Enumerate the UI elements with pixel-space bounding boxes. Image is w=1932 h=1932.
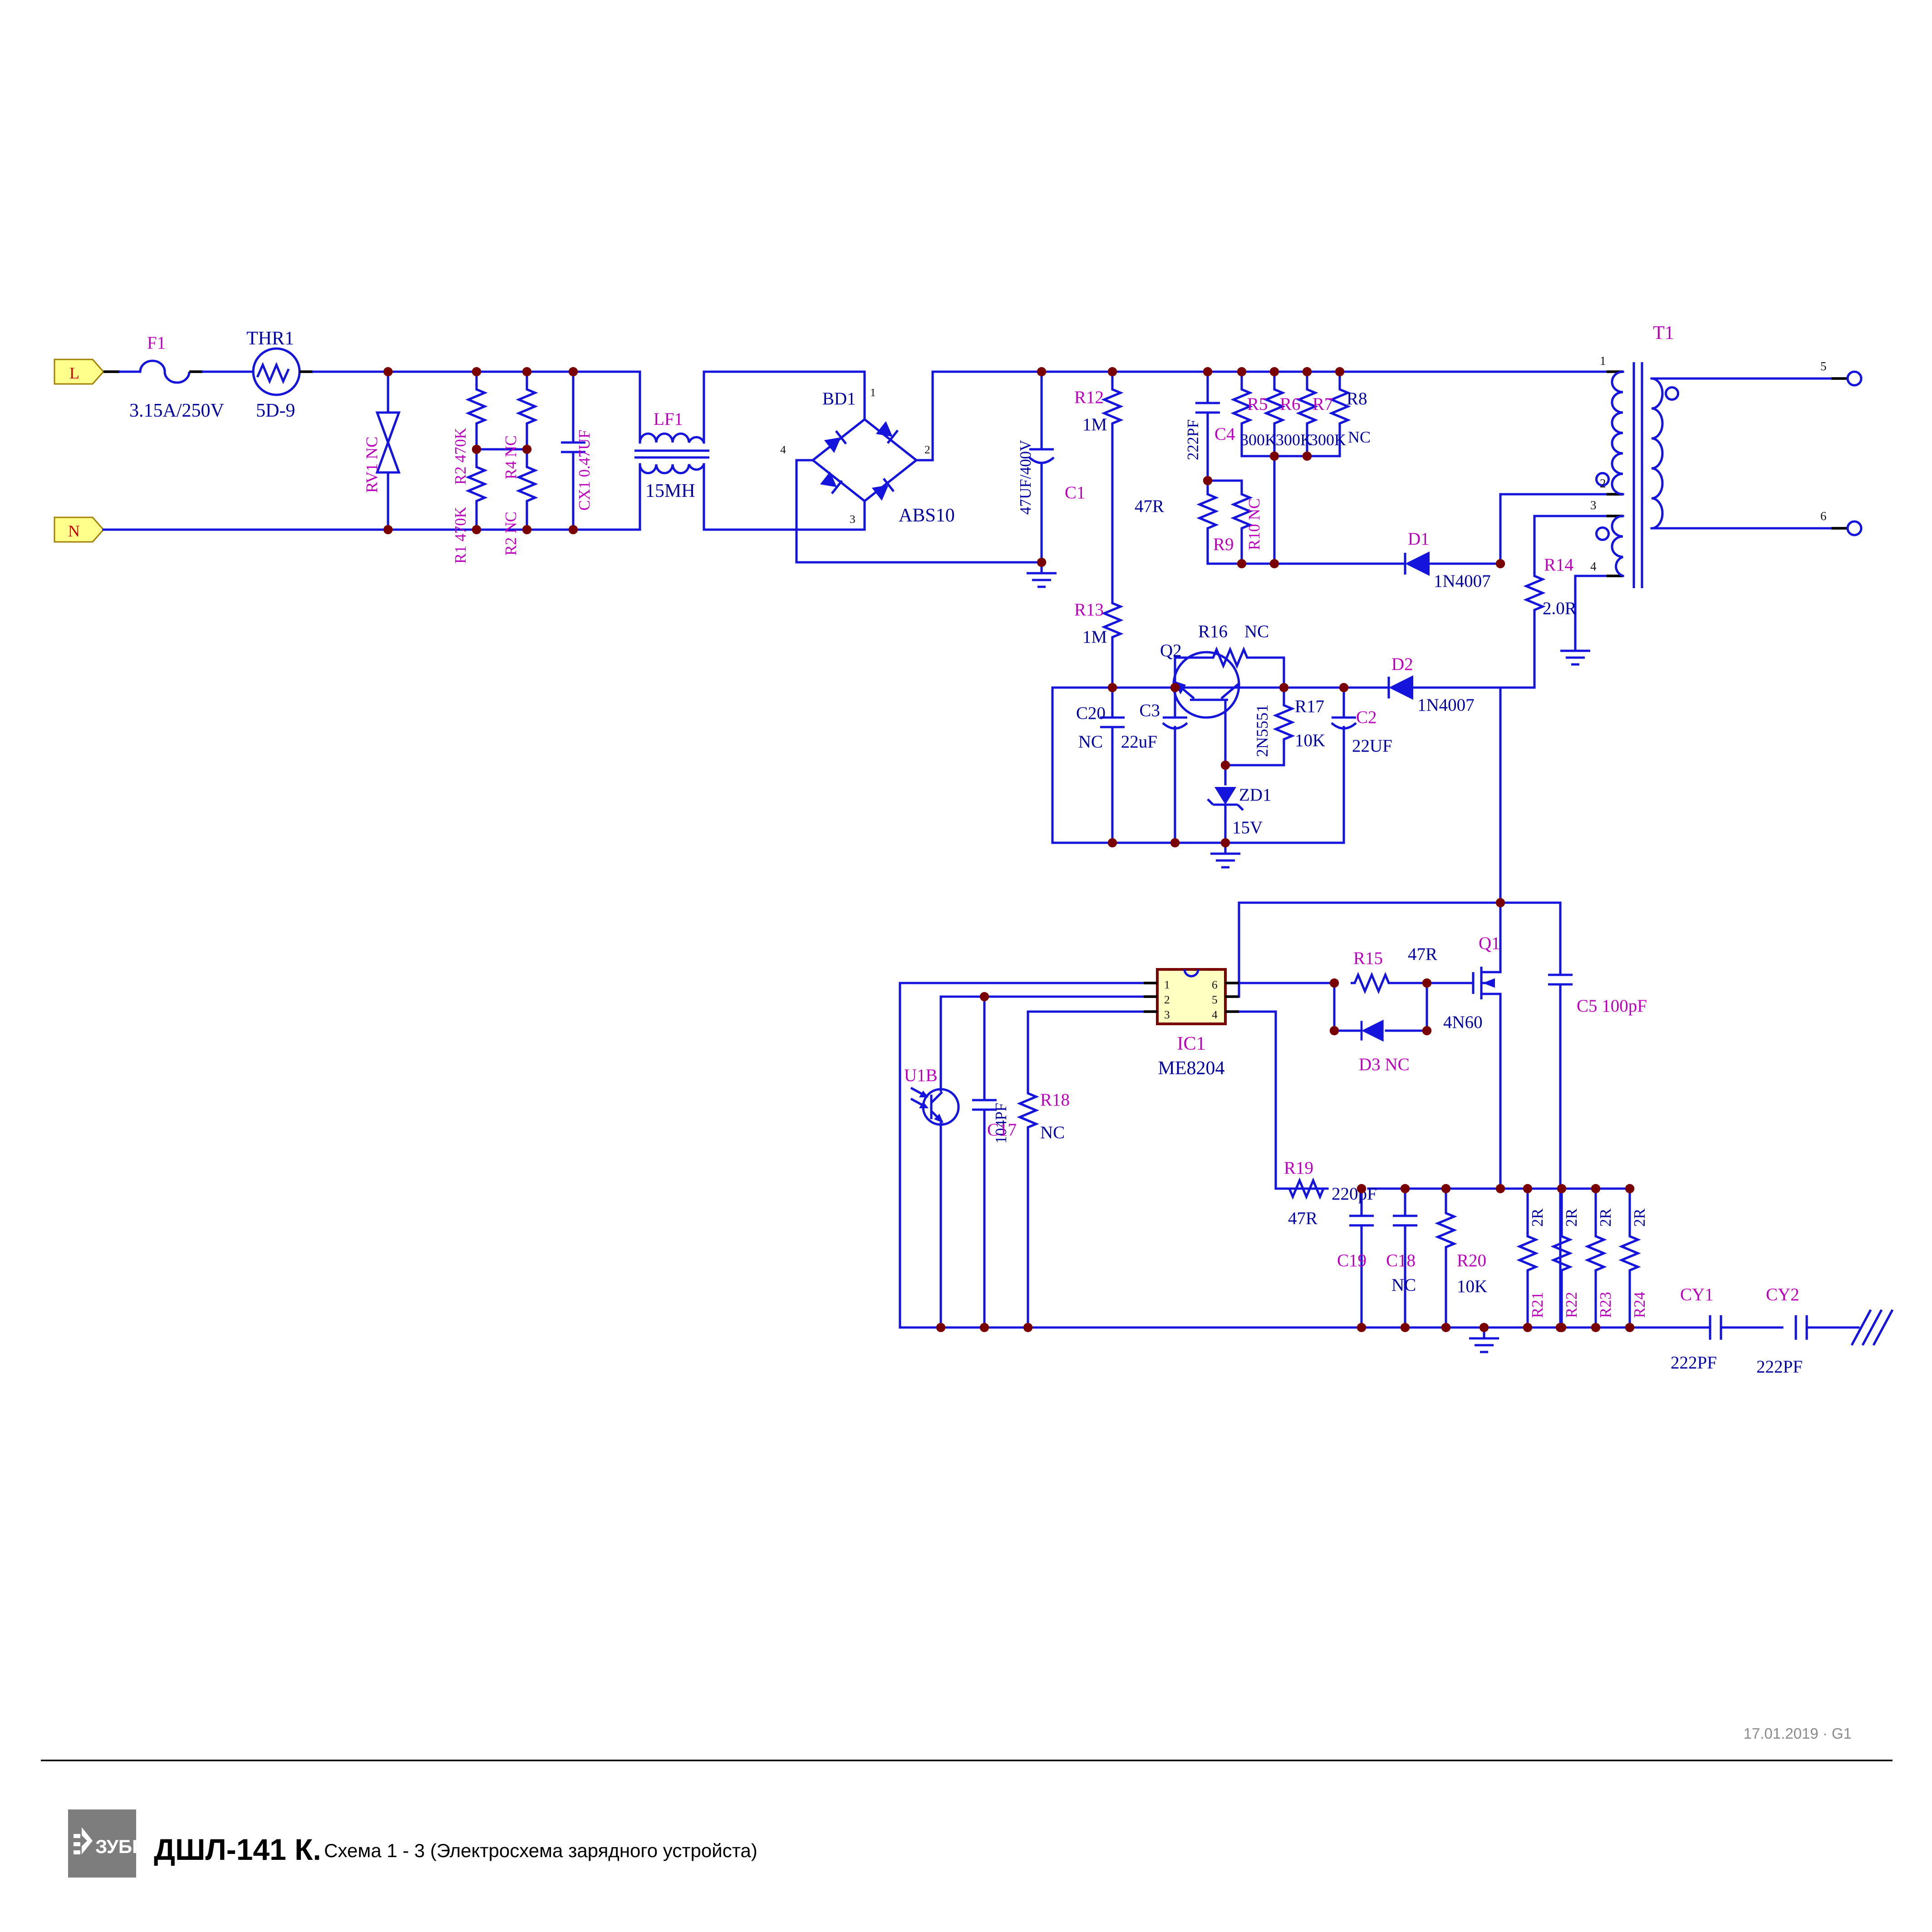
capacitor-C18-ref: C18 (1386, 1251, 1416, 1270)
bridge-diode-3 (820, 472, 842, 494)
bridge-diamond (813, 419, 916, 501)
bridge-ref: BD1 (822, 389, 856, 408)
bridge-rectifier: BD1 ABS10 1 2 3 4 (780, 372, 1623, 562)
model-title: ДШЛ-141 К. (154, 1833, 321, 1866)
resistor-R23-ref: R23 (1597, 1292, 1614, 1318)
capacitor-C19-symbol (1349, 1216, 1374, 1225)
capacitor-CY1-value: 222PF (1671, 1353, 1717, 1372)
resistor-R4-label: R4 NC (502, 435, 520, 479)
t1-pin6: 6 (1820, 509, 1827, 523)
capacitor-C3-value: 22uF (1121, 732, 1157, 752)
thermistor-THR1-symbol (253, 349, 300, 395)
bridge-pin1: 1 (870, 386, 876, 399)
resistor-R13-ref: R13 (1074, 600, 1104, 619)
resistor-R8-value: NC (1348, 428, 1371, 446)
resistor-R2b (519, 463, 535, 504)
t1-output-terminal-6 (1848, 521, 1861, 535)
t1-pin3: 3 (1590, 498, 1597, 512)
resistor-R20-value: 10K (1457, 1277, 1487, 1296)
input-section: L N F1 3.15A/250V THR1 5D-9 RV1 NC R2 47… (54, 328, 865, 564)
bridge-pin4: 4 (780, 443, 786, 456)
resistor-R24-ref: R24 (1631, 1292, 1648, 1318)
ground-T1pin4 (1560, 640, 1590, 664)
capacitor-CY2-ref: CY2 (1766, 1285, 1799, 1304)
capacitor-CY2-symbol (1796, 1315, 1807, 1340)
capacitor-CY1-symbol (1710, 1315, 1721, 1340)
t1-pin2: 2 (1600, 477, 1606, 490)
resistor-R5-value: 300K (1240, 431, 1277, 449)
ic1-pin6: 6 (1212, 978, 1218, 991)
bridge-diode-2 (876, 421, 898, 443)
resistor-R16-value: NC (1244, 622, 1269, 641)
resistor-R6-value: 300K (1276, 431, 1312, 449)
t1-pin5: 5 (1820, 359, 1827, 373)
capacitor-C1-value: 47UF/400V (1017, 440, 1034, 515)
resistor-R20 (1438, 1209, 1454, 1250)
optocoupler-ref: U1B (904, 1066, 938, 1085)
resistor-R10-label: R10 NC (1246, 498, 1263, 550)
t1-secondary-winding (1652, 379, 1662, 528)
t1-pin1: 1 (1600, 354, 1606, 368)
line-terminal-label: L (69, 364, 79, 382)
choke-value: 15MH (645, 481, 695, 501)
ic1-pin2: 2 (1164, 993, 1170, 1006)
transformer-ref: T1 (1653, 323, 1674, 344)
resistor-R16-ref: R16 (1198, 622, 1228, 641)
ic1-value: ME8204 (1158, 1058, 1225, 1079)
resistor-R1-label: R1 470K (452, 506, 469, 564)
diode-D2-value: 1N4007 (1417, 695, 1475, 715)
resistor-R23 (1588, 1232, 1604, 1273)
regulator-block: R16 NC Q2 2N5551 R17 10K C20 NC C3 22uF … (1052, 622, 1534, 867)
resistor-R2b-label: R2 NC (502, 511, 520, 556)
thermistor-ref: THR1 (246, 328, 294, 349)
capacitor-CY1-ref: CY1 (1680, 1285, 1714, 1304)
resistor-R22-ref: R22 (1563, 1292, 1580, 1318)
diode-D3-label: D3 NC (1359, 1055, 1410, 1074)
transistor-Q2-value: 2N5551 (1253, 704, 1271, 757)
ic1-pin4: 4 (1212, 1008, 1218, 1021)
resistor-R1 (468, 463, 485, 504)
capacitor-C19-value: 220pF (1332, 1184, 1377, 1204)
resistor-R8 (1332, 385, 1348, 426)
capacitor-C20-value: NC (1078, 732, 1103, 752)
resistor-R13-value: 1M (1082, 627, 1107, 647)
diode-D1-ref: D1 (1408, 529, 1430, 549)
capacitor-C4-value: 222PF (1185, 419, 1202, 460)
t1-aux-polarity-dot (1597, 528, 1609, 540)
diode-D2-symbol (1389, 675, 1413, 700)
resistor-R19-value: 47R (1288, 1209, 1317, 1228)
resistor-R9 (1200, 490, 1216, 531)
capacitor-C20-ref: C20 (1076, 703, 1106, 723)
resistor-R21-value: 2R (1529, 1209, 1546, 1227)
fuse-ref: F1 (147, 333, 166, 353)
resistor-R14 (1526, 572, 1543, 613)
t1-core (1634, 362, 1642, 588)
junction-dots (383, 367, 1634, 1332)
footer: 17.01.2019 · G1 ЗУБР ДШЛ-141 К. Схема 1 … (41, 1725, 1893, 1878)
resistor-R5-ref: R5 (1247, 394, 1268, 414)
capacitor-C18-value: NC (1391, 1275, 1416, 1295)
resistor-R9-ref: R9 (1213, 535, 1234, 554)
resistor-R7-value: 300K (1310, 431, 1346, 449)
capacitor-C5-label: C5 100pF (1577, 996, 1647, 1016)
zener-ZD1-ref: ZD1 (1239, 785, 1272, 805)
capacitor-C17-ref: C17 (987, 1120, 1017, 1140)
ic1-ref: IC1 (1177, 1033, 1206, 1054)
resistor-R24 (1622, 1232, 1638, 1273)
capacitor-C2-value: 22UF (1352, 736, 1392, 756)
capacitor-C4-symbol (1195, 403, 1220, 413)
optocoupler-U1B-symbol (911, 1088, 959, 1125)
t1-output-terminal-5 (1848, 372, 1861, 385)
varistor-label: RV1 NC (363, 437, 381, 493)
resistor-R12-value: 1M (1082, 415, 1107, 434)
transformer-T1: T1 1 2 3 4 5 6 R14 2.0R (1500, 323, 1861, 688)
mosfet-Q1-ref: Q1 (1479, 934, 1500, 953)
diode-D3-symbol (1362, 1020, 1384, 1042)
resistor-R2 (468, 385, 485, 426)
resistor-R17-value: 10K (1295, 731, 1325, 750)
resistor-R18-value: NC (1040, 1123, 1065, 1142)
transistor-Q2-symbol (1174, 652, 1239, 718)
diode-D2-ref: D2 (1391, 654, 1413, 674)
resistor-R24-value: 2R (1631, 1209, 1648, 1227)
capacitor-C1-ref: C1 (1065, 483, 1086, 502)
t1-pin4: 4 (1590, 560, 1597, 573)
t1-primary-winding (1612, 372, 1623, 494)
zener-ZD1-value: 15V (1232, 818, 1263, 837)
diode-D1-symbol (1405, 551, 1430, 576)
resistor-R22 (1553, 1232, 1570, 1273)
capacitor-C4-ref: C4 (1214, 424, 1235, 444)
mosfet-Q1-value: 4N60 (1443, 1013, 1483, 1032)
brand-name: ЗУБР (95, 1836, 145, 1857)
bridge-pin3: 3 (850, 512, 855, 526)
resistor-R15-value: 47R (1408, 944, 1437, 964)
resistor-R6-ref: R6 (1280, 394, 1301, 414)
capacitor-C2-ref: C2 (1356, 708, 1377, 727)
resistor-R7-ref: R7 (1313, 394, 1333, 414)
date-revision: 17.01.2019 · G1 (1743, 1725, 1852, 1742)
resistor-R9-value: 47R (1135, 497, 1164, 516)
resistor-R21-ref: R21 (1529, 1292, 1546, 1318)
ic1-pin3: 3 (1164, 1008, 1170, 1021)
resistor-R12-ref: R12 (1074, 388, 1104, 407)
resistor-R17 (1276, 701, 1292, 742)
resistor-R14-value: 2.0R (1543, 599, 1577, 618)
resistor-R18 (1020, 1089, 1036, 1130)
resistor-R8-ref: R8 (1347, 389, 1367, 408)
resistor-R19-ref: R19 (1284, 1158, 1313, 1178)
capacitor-C19-ref: C19 (1337, 1251, 1367, 1270)
bridge-value: ABS10 (899, 505, 955, 526)
neutral-terminal-label: N (68, 522, 80, 540)
resistor-R2-label: R2 470K (452, 428, 469, 485)
fuse-F1-symbol (140, 361, 189, 383)
schema-subtitle: Схема 1 - 3 (Электросхема зарядного устр… (324, 1840, 757, 1861)
t1-aux-winding (1612, 516, 1623, 576)
capacitor-C18-symbol (1393, 1216, 1417, 1225)
resistor-R15 (1351, 975, 1391, 991)
circuit-canvas: L N F1 3.15A/250V THR1 5D-9 RV1 NC R2 47… (0, 0, 1932, 1932)
choke-ref: LF1 (654, 409, 683, 429)
bridge-pin2: 2 (924, 443, 930, 456)
capacitor-C5-symbol (1548, 975, 1573, 984)
controller-section: 1 2 3 6 5 4 IC1 ME8204 R15 47R D3 NC Q1 … (900, 688, 1647, 1327)
capacitor-CY2-value: 222PF (1756, 1357, 1803, 1376)
schematic-page: L N F1 3.15A/250V THR1 5D-9 RV1 NC R2 47… (0, 0, 1932, 1932)
t1-secondary-polarity-dot (1666, 388, 1678, 400)
resistor-R14-ref: R14 (1544, 555, 1573, 575)
ic1-pin5: 5 (1212, 993, 1218, 1006)
resistor-R4 (519, 385, 535, 426)
resistor-R23-value: 2R (1597, 1209, 1614, 1227)
resistor-R21 (1519, 1232, 1536, 1273)
fuse-value: 3.15A/250V (129, 400, 224, 421)
transistor-Q2-ref: Q2 (1160, 641, 1182, 660)
resistor-R17-ref: R17 (1295, 697, 1324, 716)
resistor-R18-ref: R18 (1040, 1090, 1070, 1110)
capacitor-C3-ref: C3 (1139, 701, 1160, 720)
feedback-section: U1B 104PF C17 R18 NC R19 47R 220pF C19 C… (900, 1066, 1893, 1376)
capacitor-CX1-label: CX1 0.47UF (576, 430, 593, 511)
resistor-R15-ref: R15 (1353, 949, 1383, 968)
thermistor-value: 5D-9 (256, 400, 295, 421)
diode-D1-value: 1N4007 (1434, 571, 1491, 591)
ic1-pin1: 1 (1164, 978, 1170, 991)
resistor-R22-value: 2R (1563, 1209, 1580, 1227)
resistor-R20-ref: R20 (1457, 1251, 1486, 1270)
